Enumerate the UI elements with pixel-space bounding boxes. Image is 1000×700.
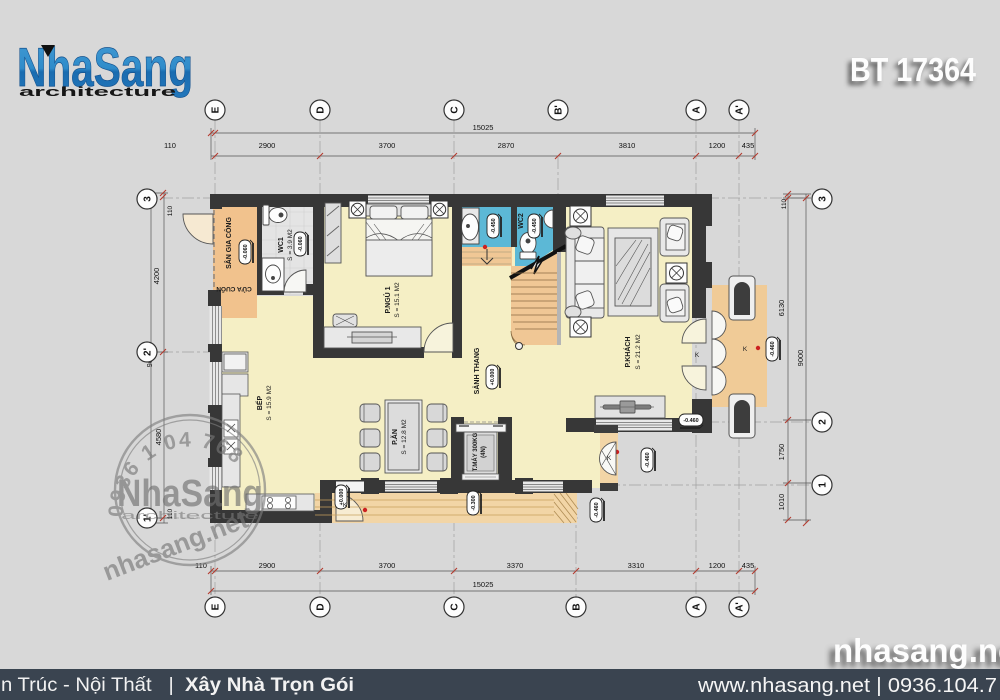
svg-text:9000: 9000 <box>796 350 805 367</box>
svg-text:435: 435 <box>742 561 755 570</box>
svg-text:S = 3.9 M2: S = 3.9 M2 <box>287 229 294 261</box>
svg-text:1: 1 <box>818 482 829 488</box>
svg-text:4200: 4200 <box>152 268 161 285</box>
svg-text:WC2: WC2 <box>518 213 525 229</box>
svg-text:D: D <box>316 106 327 113</box>
svg-text:B: B <box>572 603 583 610</box>
svg-text:P.ĂN: P.ĂN <box>390 429 399 445</box>
svg-text:3370: 3370 <box>507 561 524 570</box>
svg-text:E: E <box>211 106 222 113</box>
svg-text:P.KHÁCH: P.KHÁCH <box>623 337 632 368</box>
svg-text:nhasang.net: nhasang.net <box>833 632 1000 669</box>
svg-text:-0.450: -0.450 <box>491 218 497 233</box>
svg-text:1010: 1010 <box>777 494 786 511</box>
svg-text:K: K <box>343 502 348 509</box>
svg-text:B': B' <box>554 105 565 115</box>
svg-text:n Trúc - Nội Thất | Xây Nhà: n Trúc - Nội Thất | Xây Nhà Trọn Gói <box>1 675 354 696</box>
svg-text:BT 17364: BT 17364 <box>850 51 977 88</box>
svg-text:3: 3 <box>143 196 154 202</box>
svg-text:110: 110 <box>167 205 174 216</box>
svg-text:-0.060: -0.060 <box>243 244 249 259</box>
svg-text:6130: 6130 <box>777 300 786 317</box>
svg-text:(4N): (4N) <box>481 446 487 458</box>
svg-text:3: 3 <box>818 196 829 202</box>
svg-text:3700: 3700 <box>379 561 396 570</box>
svg-text:K: K <box>695 352 700 359</box>
svg-text:K: K <box>743 346 748 353</box>
svg-text:C: C <box>450 106 461 113</box>
svg-text:www.nhasang.net | 0936.104.7: www.nhasang.net | 0936.104.7 <box>697 675 997 697</box>
svg-text:A': A' <box>735 105 746 115</box>
svg-text:S = 15.1 M2: S = 15.1 M2 <box>394 282 401 318</box>
svg-text:C: C <box>450 603 461 610</box>
svg-text:-0.460: -0.460 <box>683 418 698 424</box>
svg-text:A': A' <box>735 602 746 612</box>
svg-text:2900: 2900 <box>259 141 276 150</box>
svg-text:K: K <box>607 455 612 462</box>
svg-text:S = 21.2 M2: S = 21.2 M2 <box>635 334 642 370</box>
svg-text:2': 2' <box>143 348 154 356</box>
svg-text:T.MÁY 300KG: T.MÁY 300KG <box>472 432 479 471</box>
svg-text:3310: 3310 <box>628 561 645 570</box>
svg-text:architecture: architecture <box>19 85 176 99</box>
svg-text:1200: 1200 <box>709 561 726 570</box>
svg-text:-0.460: -0.460 <box>645 452 651 467</box>
svg-text:E: E <box>211 603 222 610</box>
svg-text:P.NGỦ 1: P.NGỦ 1 <box>383 286 392 313</box>
svg-text:435: 435 <box>742 141 755 150</box>
svg-text:+0.000: +0.000 <box>490 369 496 386</box>
svg-text:A: A <box>692 603 703 610</box>
svg-text:3810: 3810 <box>619 141 636 150</box>
svg-text:-0.460: -0.460 <box>770 341 776 356</box>
svg-text:D: D <box>316 603 327 610</box>
svg-text:-0.300: -0.300 <box>471 495 477 510</box>
svg-text:2870: 2870 <box>498 141 515 150</box>
svg-text:WC1: WC1 <box>278 237 285 253</box>
svg-text:2900: 2900 <box>259 561 276 570</box>
svg-text:-0.460: -0.460 <box>594 502 600 517</box>
svg-text:-0.450: -0.450 <box>532 218 538 233</box>
svg-text:2: 2 <box>818 419 829 425</box>
svg-text:1750: 1750 <box>777 444 786 461</box>
svg-text:110: 110 <box>164 141 176 150</box>
svg-text:3700: 3700 <box>379 141 396 150</box>
svg-text:15025: 15025 <box>473 123 494 132</box>
svg-text:S = 12.8 M2: S = 12.8 M2 <box>401 419 408 455</box>
svg-text:-0.060: -0.060 <box>298 236 304 251</box>
svg-text:A: A <box>692 106 703 113</box>
svg-text:110: 110 <box>781 198 788 209</box>
svg-text:15025: 15025 <box>473 580 494 589</box>
svg-text:1200: 1200 <box>709 141 726 150</box>
svg-text:SẢNH THANG: SẢNH THANG <box>472 347 481 394</box>
svg-text:SÂN GIA CÔNG: SÂN GIA CÔNG <box>224 217 233 269</box>
svg-text:S = 15.9 M2: S = 15.9 M2 <box>266 385 273 421</box>
